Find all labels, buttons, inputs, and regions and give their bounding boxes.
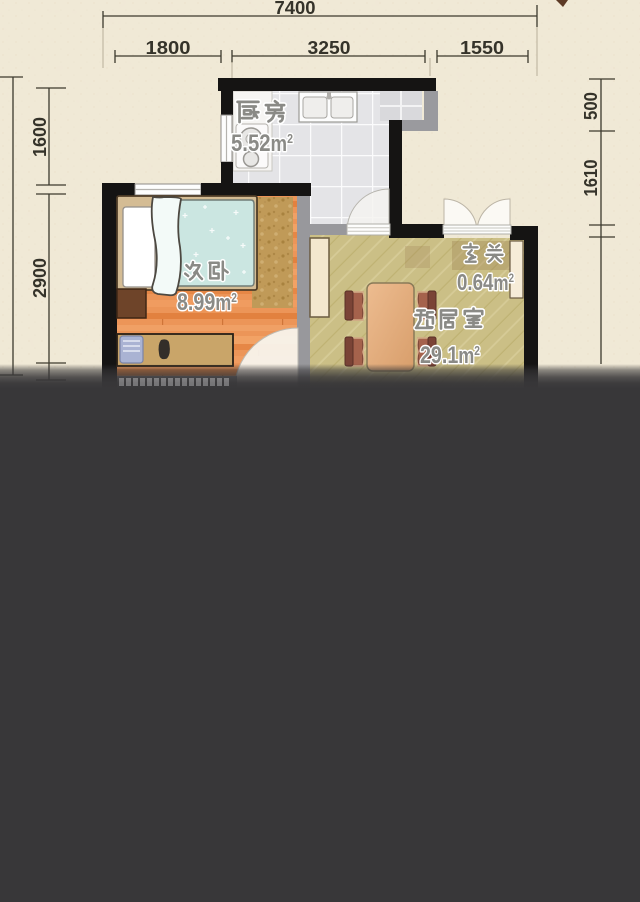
svg-text:8.99m2: 8.99m2 xyxy=(177,289,237,316)
svg-text:500: 500 xyxy=(581,92,601,120)
svg-text:5.52m2: 5.52m2 xyxy=(231,130,293,157)
svg-text:2900: 2900 xyxy=(30,258,50,298)
svg-text:1800: 1800 xyxy=(146,38,191,58)
svg-text:1550: 1550 xyxy=(460,38,504,58)
svg-text:7400: 7400 xyxy=(275,0,316,18)
svg-text:3250: 3250 xyxy=(308,38,351,58)
svg-text:1610: 1610 xyxy=(581,160,601,197)
svg-text:1600: 1600 xyxy=(30,117,50,157)
svg-text:0.64m2: 0.64m2 xyxy=(457,269,514,295)
